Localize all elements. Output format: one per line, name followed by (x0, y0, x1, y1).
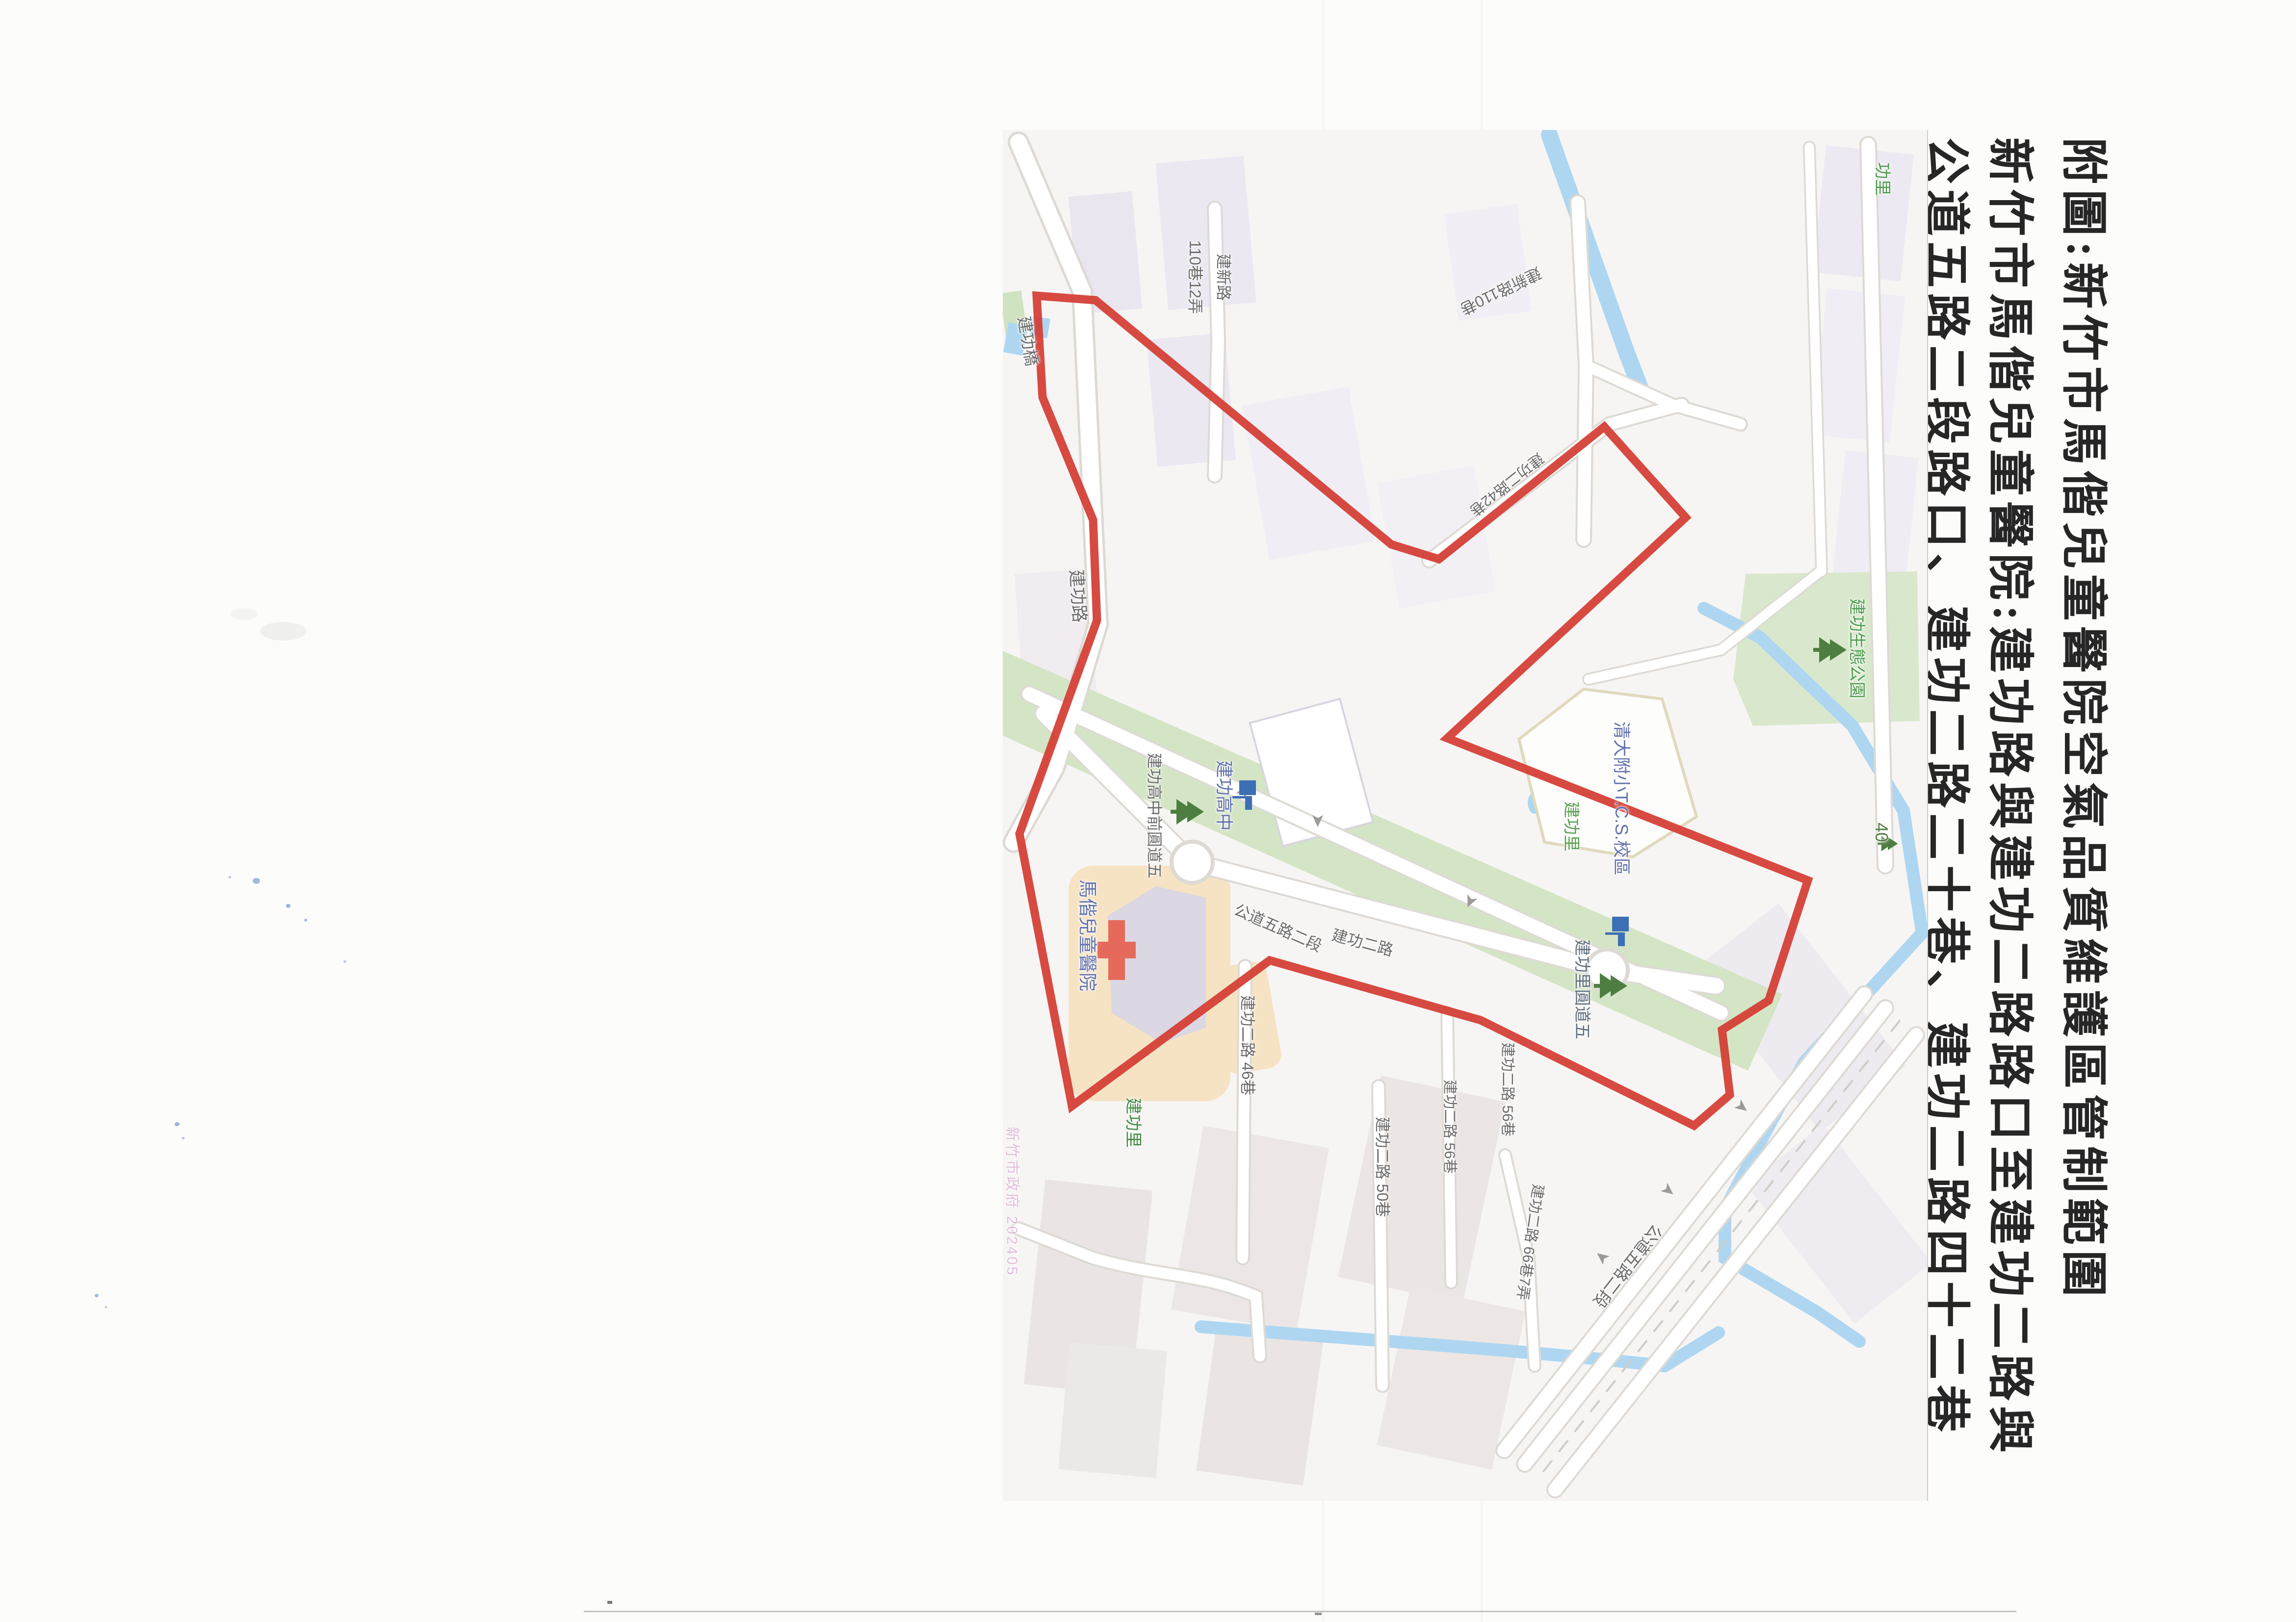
road-label-jiangong-rd: 建功路 (1065, 568, 1094, 623)
scan-edge-mark (607, 1601, 612, 1604)
rotated-document: 附圖:新竹市馬偕兒童醫院空氣品質維護區管制範圍 新竹市馬偕兒童醫院:建功路與建功… (981, 123, 2129, 1530)
ink-spot (182, 1137, 184, 1139)
school-label-tcs-campus: 清大附小T.C.S.校區 (1610, 721, 1636, 875)
map-graphics (1003, 130, 1927, 1501)
district-label-gongli: 功里 (1872, 162, 1896, 196)
roundabout-label-jiangongli: 建功里圓道五 (1572, 939, 1596, 1039)
ink-spot (95, 1294, 99, 1297)
watermark: 新竹市政府 202405 (1003, 1127, 1024, 1277)
ink-spot (343, 960, 346, 963)
ink-spot (229, 876, 231, 878)
control-area-map: 功里 建功生態公園 40 建新路110巷 建新路 110巷12弄 建功橋 建功路… (1003, 130, 1928, 1501)
route-marker-40: 40 (1871, 823, 1892, 842)
ink-spot (105, 1306, 107, 1308)
scan-edge-line (584, 1611, 2016, 1612)
road-label-lane-46: 建功二路 46巷 (1237, 995, 1260, 1096)
scan-edge-mark (1315, 1613, 1322, 1615)
roundabout-1 (1172, 842, 1213, 883)
road-label-jianxin: 建新路 (1213, 254, 1236, 301)
road-label-lane-56b: 建功二路 56巷 (1498, 1042, 1520, 1136)
road-label-lane-50: 建功二路 50巷 (1372, 1117, 1395, 1217)
ink-spot (304, 919, 307, 922)
ink-spot (253, 878, 260, 884)
park-label-ecology-park: 建功生態公園 (1847, 598, 1871, 698)
road-label-lane-56a: 建功二路 56巷 (1440, 1080, 1462, 1174)
pencil-smudge (231, 608, 258, 620)
figure-title-line-1: 附圖:新竹市馬偕兒童醫院空氣品質維護區管制範圍 (2054, 137, 2121, 1302)
district-label-jiangongli-1: 建功里 (1561, 801, 1585, 851)
figure-title-line-2: 新竹市馬偕兒童醫院:建功路與建功二路路口至建功二路與 (1981, 137, 2048, 1458)
road-label-110-12: 110巷12弄 (1185, 240, 1207, 314)
district-label-jiangongli-2: 建功里 (1123, 1098, 1147, 1148)
school-label-jiangong-high: 建功高中 (1213, 760, 1238, 831)
roundabout-label-high-school: 建功高中前圓道五 (1144, 753, 1167, 878)
pencil-smudge (260, 622, 307, 641)
ink-spot (286, 904, 290, 908)
ink-spot (175, 1122, 180, 1126)
hospital-label-mackay: 馬偕兒童醫院 (1076, 879, 1103, 991)
